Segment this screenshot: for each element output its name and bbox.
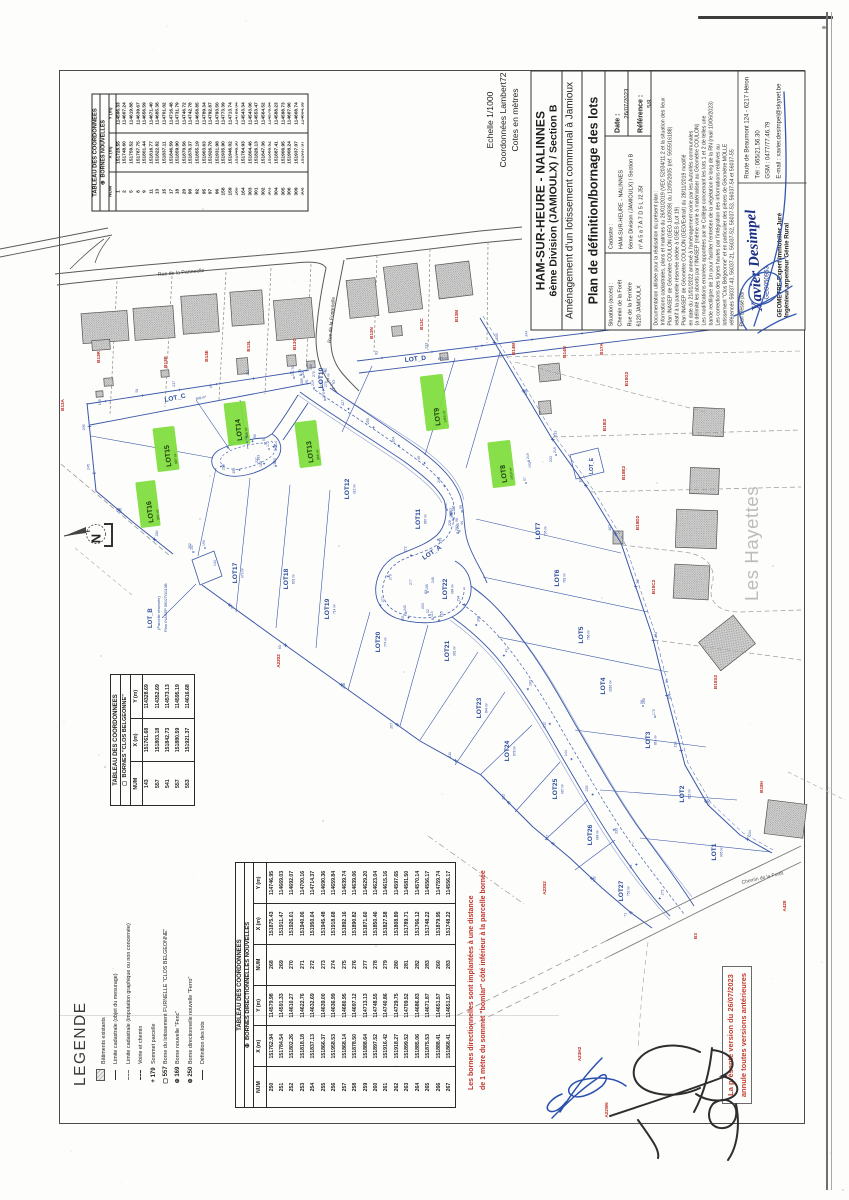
svg-text:Rue de la Panneelle: Rue de la Panneelle xyxy=(158,268,205,278)
svg-text:984 m²: 984 m² xyxy=(155,508,160,520)
svg-text:103: 103 xyxy=(401,616,405,622)
svg-text:52: 52 xyxy=(426,609,430,613)
svg-text:193: 193 xyxy=(528,462,532,468)
svg-text:LOT11: LOT11 xyxy=(415,509,422,529)
svg-text:159: 159 xyxy=(439,538,443,544)
svg-text:46: 46 xyxy=(244,436,248,440)
svg-text:984 m²: 984 m² xyxy=(596,830,600,840)
svg-text:151: 151 xyxy=(291,370,295,376)
svg-text:36: 36 xyxy=(636,580,640,584)
svg-text:188: 188 xyxy=(259,461,263,467)
svg-text:B18D2: B18D2 xyxy=(635,515,640,530)
svg-text:98: 98 xyxy=(455,518,459,522)
svg-text:270: 270 xyxy=(322,392,326,398)
svg-text:63: 63 xyxy=(278,645,282,649)
svg-text:35: 35 xyxy=(298,369,302,373)
svg-text:678 m²: 678 m² xyxy=(513,746,517,756)
svg-text:223: 223 xyxy=(549,456,553,462)
svg-text:270: 270 xyxy=(312,371,316,377)
svg-text:284: 284 xyxy=(155,530,159,536)
svg-text:244: 244 xyxy=(525,331,529,337)
svg-text:984 m²: 984 m² xyxy=(451,584,455,594)
svg-text:252: 252 xyxy=(188,543,192,549)
svg-text:B18H: B18H xyxy=(759,780,764,792)
svg-text:LOT27: LOT27 xyxy=(618,880,625,901)
svg-text:227: 227 xyxy=(255,457,259,463)
svg-text:766 m²: 766 m² xyxy=(587,630,591,640)
svg-text:300: 300 xyxy=(477,616,481,622)
svg-text:277: 277 xyxy=(409,579,413,585)
svg-text:781 m²: 781 m² xyxy=(563,573,567,583)
svg-text:B3: B3 xyxy=(693,933,698,939)
svg-text:30: 30 xyxy=(417,456,421,460)
svg-text:235: 235 xyxy=(495,333,499,339)
svg-text:271: 271 xyxy=(660,889,664,895)
svg-text:LOT21: LOT21 xyxy=(444,640,451,661)
svg-text:B13N: B13N xyxy=(369,326,374,338)
svg-text:235: 235 xyxy=(585,786,589,792)
svg-text:1016 m²: 1016 m² xyxy=(609,680,613,692)
svg-text:216: 216 xyxy=(437,477,441,483)
svg-text:B13E: B13E xyxy=(204,350,209,362)
svg-text:912 m²: 912 m² xyxy=(353,484,357,494)
svg-text:276: 276 xyxy=(324,381,328,387)
svg-text:LOT20: LOT20 xyxy=(375,631,382,652)
svg-text:752 m²: 752 m² xyxy=(627,886,631,896)
svg-text:609 m²: 609 m² xyxy=(195,395,207,401)
svg-text:LOT26: LOT26 xyxy=(587,824,594,845)
svg-text:B18I2: B18I2 xyxy=(602,418,607,431)
svg-text:219: 219 xyxy=(311,380,315,386)
svg-text:172: 172 xyxy=(266,441,270,447)
svg-text:Chemin de la Forêt: Chemin de la Forêt xyxy=(741,870,784,886)
svg-text:54: 54 xyxy=(135,389,139,393)
svg-text:245: 245 xyxy=(87,464,91,470)
svg-text:51: 51 xyxy=(262,437,266,441)
svg-text:N: N xyxy=(89,534,104,543)
svg-text:282: 282 xyxy=(501,794,505,800)
svg-text:268: 268 xyxy=(642,698,646,704)
svg-text:LOT_C: LOT_C xyxy=(164,393,187,404)
svg-text:LOT_B: LOT_B xyxy=(148,608,154,628)
svg-text:B18G2: B18G2 xyxy=(624,371,629,386)
svg-text:LOT18: LOT18 xyxy=(283,568,290,589)
svg-text:B13R: B13R xyxy=(96,350,101,362)
svg-text:258: 258 xyxy=(342,683,346,689)
svg-text:LOT17: LOT17 xyxy=(232,562,239,583)
svg-text:LOT12: LOT12 xyxy=(344,478,351,499)
svg-text:51: 51 xyxy=(324,368,328,372)
svg-text:77: 77 xyxy=(230,605,234,609)
svg-text:B13A: B13A xyxy=(60,398,65,410)
svg-text:B18E2: B18E2 xyxy=(621,466,626,480)
svg-text:A2202: A2202 xyxy=(542,881,547,895)
svg-text:LOT22: LOT22 xyxy=(442,578,449,599)
svg-text:228: 228 xyxy=(448,520,452,526)
svg-text:195: 195 xyxy=(98,399,102,405)
svg-text:844 m²: 844 m² xyxy=(485,703,489,713)
svg-text:144: 144 xyxy=(564,750,568,756)
svg-text:795 m²: 795 m² xyxy=(544,526,548,536)
svg-text:B13M: B13M xyxy=(454,310,459,322)
svg-text:76: 76 xyxy=(291,366,295,370)
svg-text:905 m²: 905 m² xyxy=(720,847,724,857)
svg-text:193: 193 xyxy=(674,742,678,748)
svg-text:987 m²: 987 m² xyxy=(561,784,565,794)
svg-text:822 m²: 822 m² xyxy=(688,789,692,799)
svg-text:233: 233 xyxy=(425,343,429,349)
svg-text:255: 255 xyxy=(366,418,370,424)
svg-text:250: 250 xyxy=(524,389,528,395)
svg-text:B14M: B14M xyxy=(511,343,516,355)
svg-text:B13G: B13G xyxy=(292,338,297,350)
svg-text:217: 217 xyxy=(172,381,176,387)
svg-text:207: 207 xyxy=(390,723,394,729)
svg-text:774 m²: 774 m² xyxy=(384,637,388,647)
svg-text:154: 154 xyxy=(232,468,236,474)
svg-text:44: 44 xyxy=(460,521,464,525)
svg-text:887 m²: 887 m² xyxy=(424,514,428,524)
svg-text:219: 219 xyxy=(553,447,557,453)
svg-text:248: 248 xyxy=(431,577,435,583)
svg-text:LOT1: LOT1 xyxy=(711,843,718,860)
svg-text:212: 212 xyxy=(542,722,546,728)
svg-text:263: 263 xyxy=(706,799,710,805)
svg-text:(Parcelle réservée): (Parcelle réservée) xyxy=(156,596,161,630)
svg-text:981 m²: 981 m² xyxy=(453,646,457,656)
svg-text:49: 49 xyxy=(209,384,213,388)
svg-text:LOT_A: LOT_A xyxy=(421,544,443,562)
svg-text:814 m²: 814 m² xyxy=(654,735,658,745)
svg-text:B18S2: B18S2 xyxy=(713,675,718,689)
svg-text:163: 163 xyxy=(528,680,532,686)
svg-text:879 m²: 879 m² xyxy=(438,356,450,361)
svg-text:B13C: B13C xyxy=(419,317,424,329)
svg-text:LOT7: LOT7 xyxy=(535,522,542,539)
svg-text:Rue de la Fontenelle: Rue de la Fontenelle xyxy=(327,296,337,343)
svg-text:Plan INASEP 56027/1010B: Plan INASEP 56027/1010B xyxy=(163,583,168,632)
svg-text:714 m²: 714 m² xyxy=(333,604,337,614)
svg-text:211: 211 xyxy=(448,752,452,758)
svg-text:LOT2: LOT2 xyxy=(679,785,686,802)
svg-text:223: 223 xyxy=(273,458,277,464)
svg-text:279: 279 xyxy=(389,574,393,580)
svg-text:B14N: B14N xyxy=(562,345,567,357)
svg-text:53: 53 xyxy=(475,346,479,350)
svg-text:234: 234 xyxy=(748,830,752,836)
svg-text:71: 71 xyxy=(623,913,627,917)
svg-text:LOT_D: LOT_D xyxy=(404,355,426,364)
svg-text:162: 162 xyxy=(309,364,313,370)
svg-text:97: 97 xyxy=(523,477,527,481)
svg-text:240: 240 xyxy=(403,605,407,611)
svg-text:172: 172 xyxy=(652,709,656,715)
svg-text:104: 104 xyxy=(667,694,671,700)
svg-text:223: 223 xyxy=(421,603,425,609)
svg-text:233: 233 xyxy=(320,381,324,387)
svg-text:272: 272 xyxy=(404,546,408,552)
svg-text:167: 167 xyxy=(444,502,448,508)
svg-text:LOT_E: LOT_E xyxy=(589,457,595,474)
svg-text:A428: A428 xyxy=(782,900,787,911)
svg-text:294: 294 xyxy=(457,596,461,602)
svg-text:LOT23: LOT23 xyxy=(476,697,483,718)
svg-text:90: 90 xyxy=(253,434,257,438)
svg-text:289: 289 xyxy=(300,378,304,384)
svg-text:295: 295 xyxy=(614,828,618,834)
svg-text:LOT25: LOT25 xyxy=(552,778,559,799)
svg-text:127: 127 xyxy=(341,400,345,406)
svg-text:204: 204 xyxy=(391,437,395,443)
svg-text:Les Hayettes: Les Hayettes xyxy=(741,486,762,601)
svg-text:194: 194 xyxy=(202,540,206,546)
svg-text:601 m²: 601 m² xyxy=(292,574,296,584)
svg-text:165: 165 xyxy=(440,611,444,617)
svg-text:213: 213 xyxy=(553,431,557,437)
svg-text:979 m²: 979 m² xyxy=(241,568,245,578)
svg-text:166: 166 xyxy=(425,584,429,590)
svg-text:99: 99 xyxy=(459,505,463,509)
svg-text:148: 148 xyxy=(450,512,454,518)
svg-text:LOT19: LOT19 xyxy=(324,598,331,619)
svg-text:144: 144 xyxy=(213,560,217,566)
svg-text:233: 233 xyxy=(592,876,596,882)
svg-text:93: 93 xyxy=(375,351,379,355)
svg-text:LOT3: LOT3 xyxy=(645,731,652,748)
svg-text:LOT6: LOT6 xyxy=(554,569,561,586)
svg-text:113: 113 xyxy=(430,611,434,617)
svg-text:43: 43 xyxy=(504,649,508,653)
svg-text:44: 44 xyxy=(629,865,633,869)
svg-text:205: 205 xyxy=(82,424,86,430)
svg-text:164: 164 xyxy=(654,632,658,638)
svg-text:LOT4: LOT4 xyxy=(600,677,607,694)
svg-text:191: 191 xyxy=(305,379,309,385)
svg-text:A2202: A2202 xyxy=(276,654,281,668)
svg-text:B17A: B17A xyxy=(599,342,604,354)
svg-text:61: 61 xyxy=(665,679,669,683)
svg-text:B13B: B13B xyxy=(163,355,168,367)
svg-text:B13L: B13L xyxy=(246,340,251,351)
svg-text:37: 37 xyxy=(330,382,334,386)
svg-text:LOT5: LOT5 xyxy=(578,626,585,643)
svg-text:LOT24: LOT24 xyxy=(504,740,511,761)
svg-text:219: 219 xyxy=(526,453,530,459)
svg-text:277: 277 xyxy=(381,596,385,602)
svg-text:214: 214 xyxy=(274,441,278,447)
svg-text:B18C2: B18C2 xyxy=(651,579,656,594)
svg-text:298: 298 xyxy=(222,464,226,470)
svg-text:244: 244 xyxy=(246,370,250,376)
svg-text:107: 107 xyxy=(608,525,612,531)
